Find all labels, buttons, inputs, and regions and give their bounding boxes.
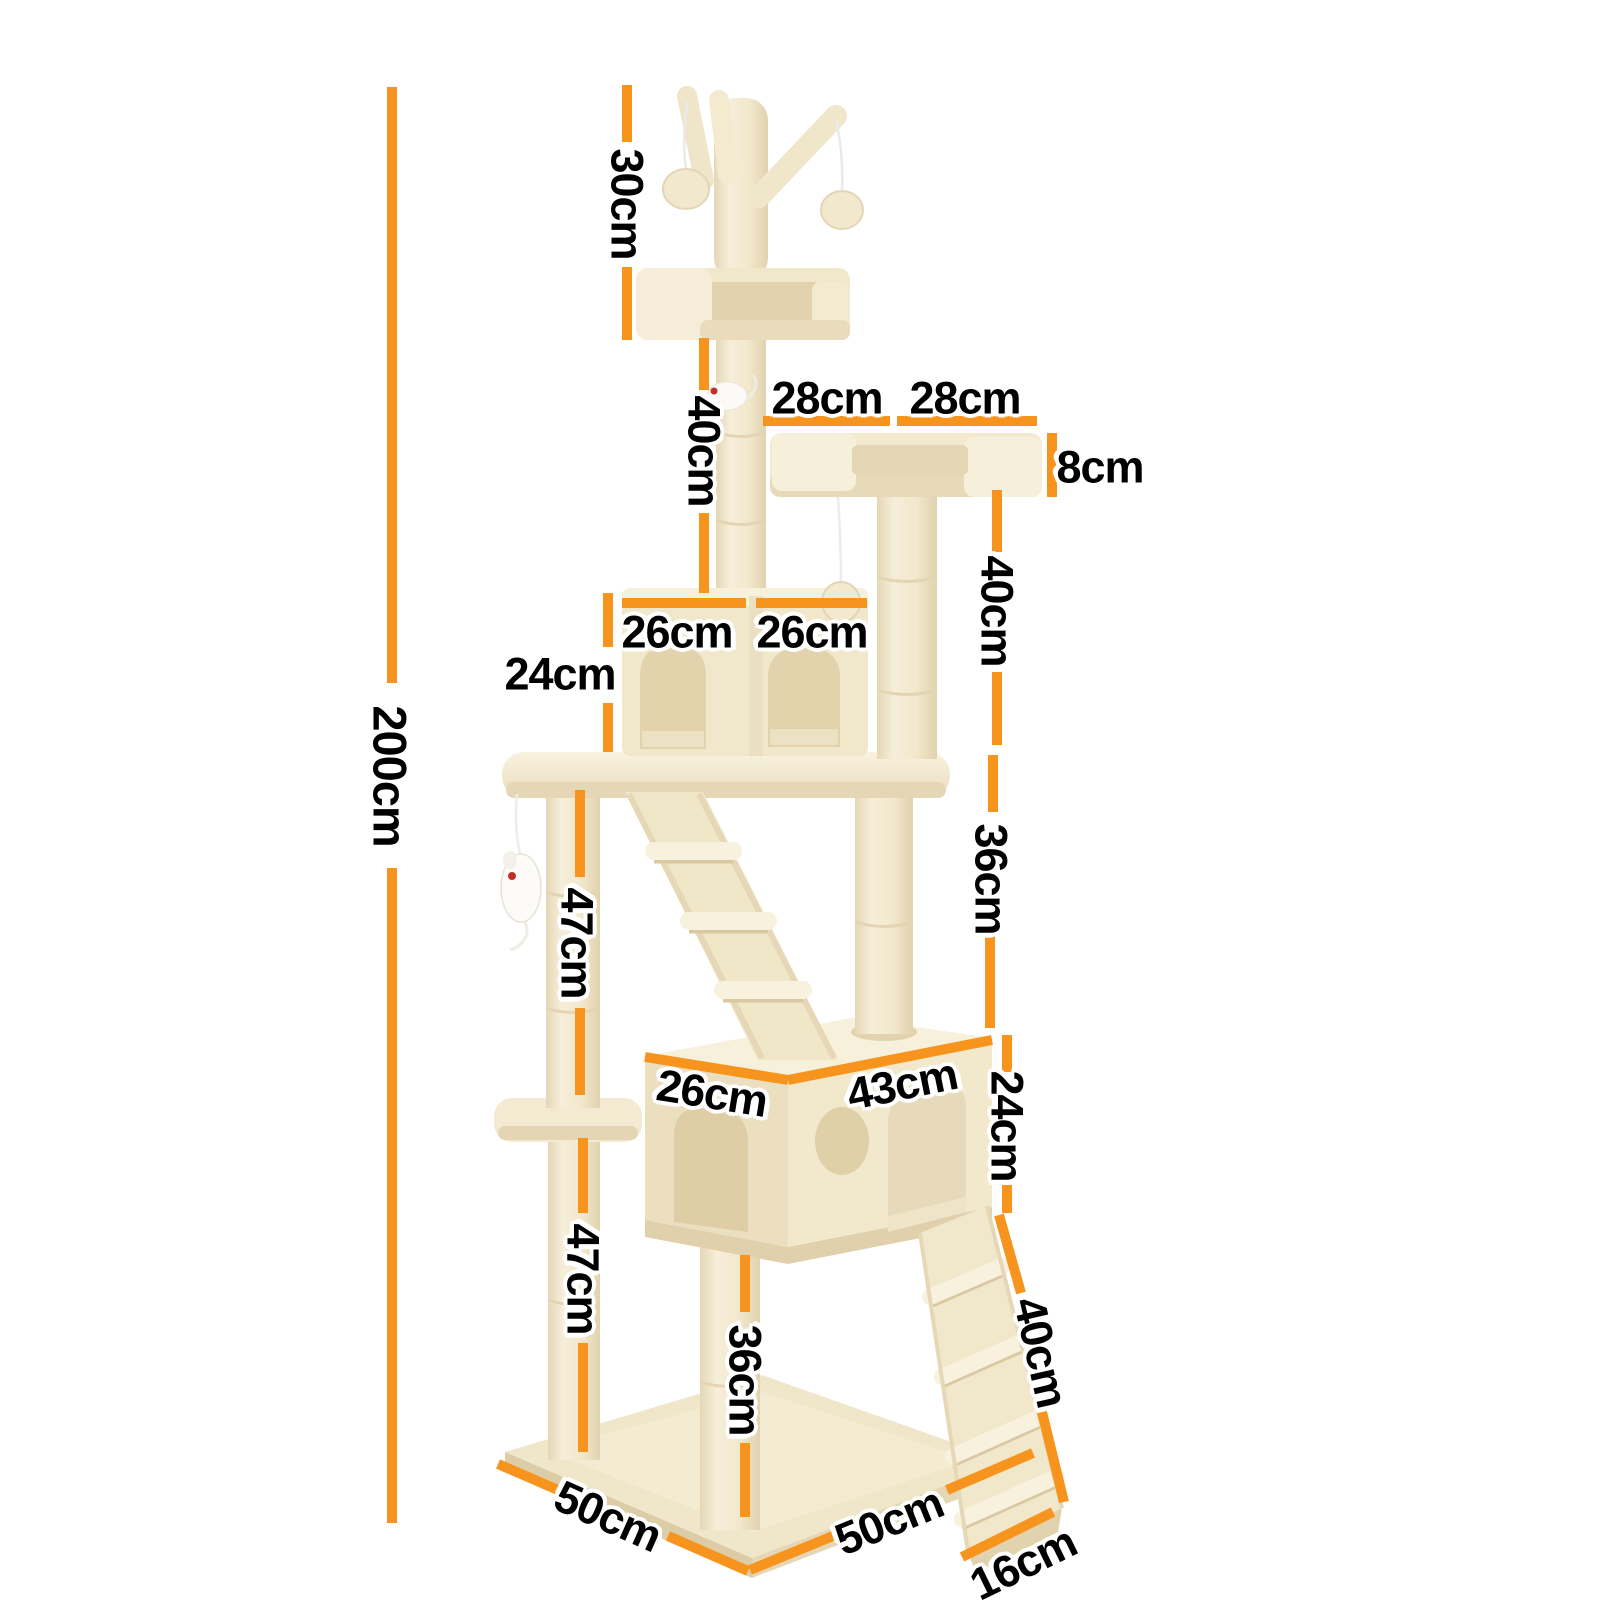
dim-label-total-height: 200cm bbox=[367, 705, 414, 846]
dim-label-right-post-upper: 40cm bbox=[975, 555, 1020, 666]
dim-label-tray-thickness: 8cm bbox=[1056, 445, 1143, 490]
dim-label-condo-height: 24cm bbox=[985, 1070, 1030, 1181]
dim-label-upper-post: 40cm bbox=[682, 395, 727, 506]
dim-label-left-post-upper: 47cm bbox=[555, 887, 600, 998]
toy-mouse-lower bbox=[501, 794, 541, 950]
top-perch bbox=[636, 268, 850, 340]
dim-label-cubby-right: 26cm bbox=[756, 610, 867, 655]
ladder bbox=[625, 792, 838, 1060]
dim-label-cubby-height: 24cm bbox=[504, 652, 615, 697]
right-post-lower bbox=[851, 798, 917, 1041]
dim-label-cubby-left: 26cm bbox=[621, 610, 732, 655]
tray-post bbox=[877, 497, 937, 759]
dim-label-tray-right: 28cm bbox=[909, 376, 1020, 421]
dim-label-bottom-post: 36cm bbox=[723, 1324, 768, 1435]
top-branches bbox=[663, 96, 863, 280]
dim-label-right-post-lower: 36cm bbox=[969, 823, 1014, 934]
dim-label-top-section: 30cm bbox=[605, 148, 650, 259]
upper-tray bbox=[770, 433, 1042, 497]
dim-label-tray-left: 28cm bbox=[771, 376, 882, 421]
dimension-diagram: 200cm 30cm 40cm 28cm 28cm 8cm 40cm 36cm … bbox=[0, 0, 1600, 1600]
cat-tree-illustration bbox=[0, 0, 1600, 1600]
dim-label-left-post-lower: 47cm bbox=[561, 1223, 606, 1334]
